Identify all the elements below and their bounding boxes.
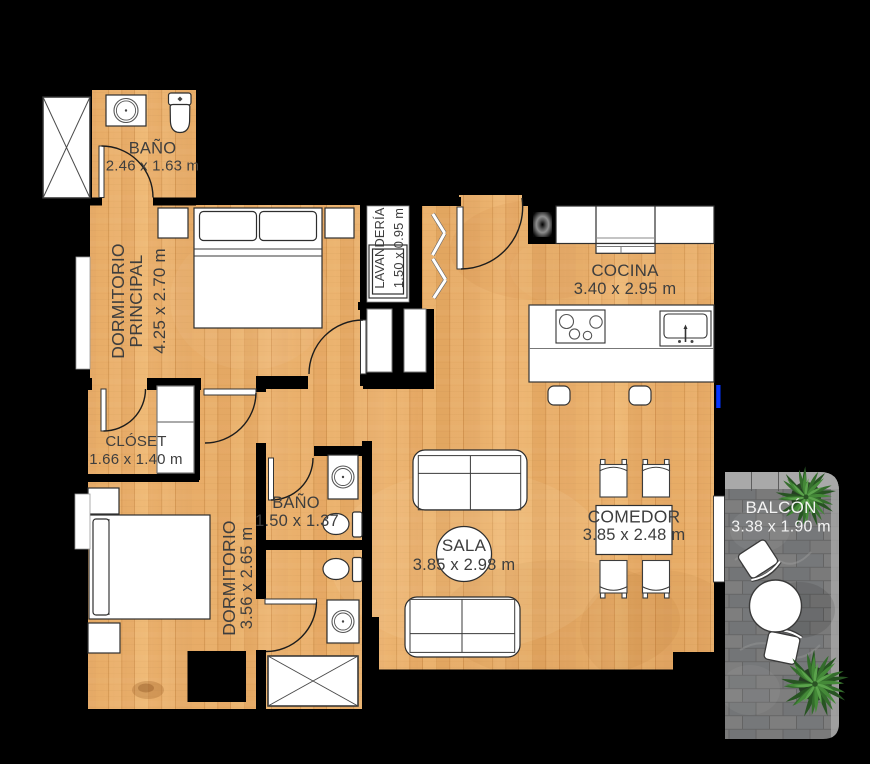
svg-text:1.50 x 1.37: 1.50 x 1.37 (255, 512, 339, 530)
svg-text:DORMITORIO: DORMITORIO (219, 520, 239, 635)
svg-text:BAÑO: BAÑO (272, 492, 320, 512)
svg-text:COMEDOR: COMEDOR (588, 507, 681, 527)
svg-text:1.50 x 0.95 m: 1.50 x 0.95 m (391, 208, 406, 288)
svg-text:3.56 x 2.65 m: 3.56 x 2.65 m (238, 527, 256, 630)
svg-text:PRINCIPAL: PRINCIPAL (126, 254, 146, 347)
svg-text:CLÓSET: CLÓSET (105, 433, 166, 450)
svg-text:COCINA: COCINA (591, 261, 659, 280)
svg-text:3.85 x 2.98 m: 3.85 x 2.98 m (413, 556, 516, 574)
svg-text:4.25 x 2.70 m: 4.25 x 2.70 m (150, 248, 169, 354)
svg-text:3.38 x 1.90 m: 3.38 x 1.90 m (731, 519, 831, 536)
svg-text:3.40 x 2.95 m: 3.40 x 2.95 m (574, 280, 677, 298)
svg-text:DORMITORIO: DORMITORIO (108, 243, 128, 358)
svg-text:BAÑO: BAÑO (129, 138, 177, 158)
svg-text:LAVANDERÍA: LAVANDERÍA (372, 207, 387, 288)
svg-text:SALA: SALA (442, 536, 487, 555)
svg-text:BALCÓN: BALCÓN (745, 498, 816, 517)
svg-text:2.46 x 1.63 m: 2.46 x 1.63 m (106, 158, 200, 175)
svg-text:1.66 x 1.40 m: 1.66 x 1.40 m (89, 451, 183, 468)
svg-text:3.85 x 2.48 m: 3.85 x 2.48 m (583, 526, 686, 544)
